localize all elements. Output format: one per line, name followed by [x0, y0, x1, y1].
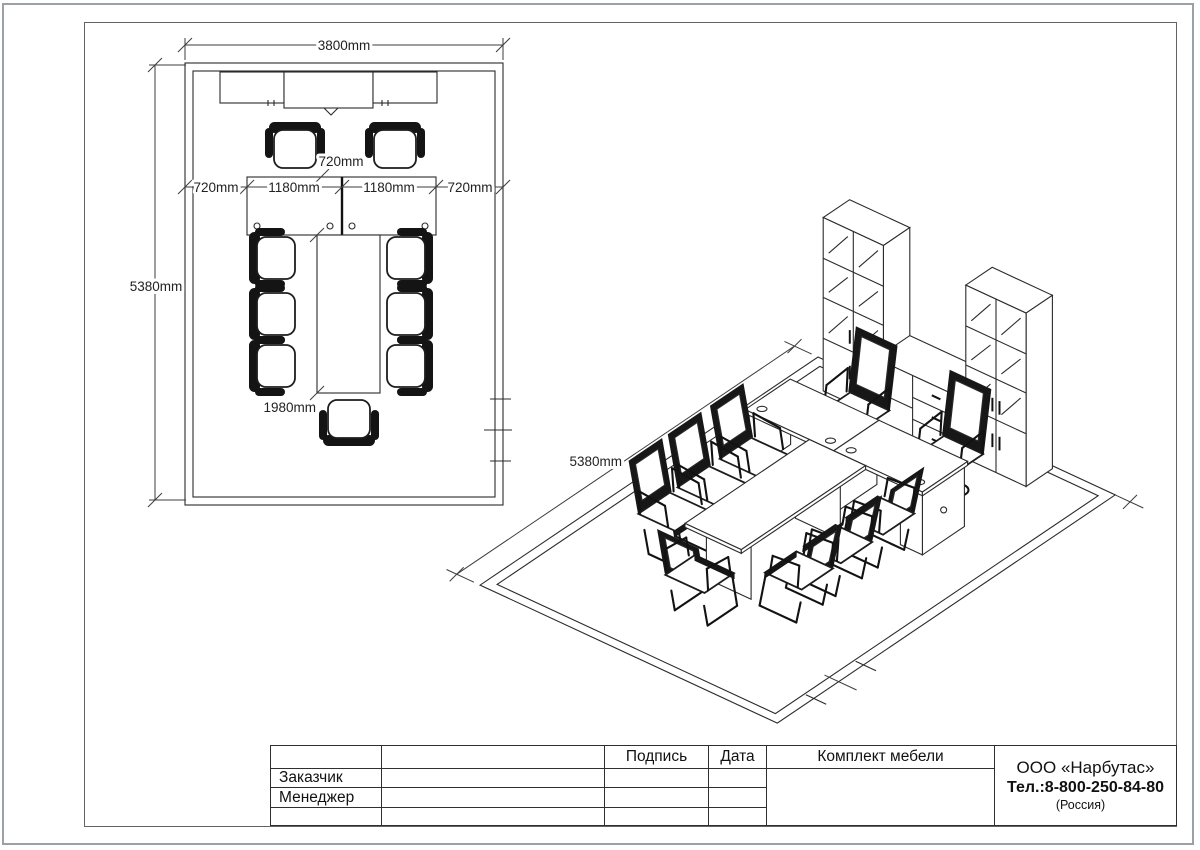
customer-value-cell — [381, 768, 604, 787]
manager-signature-cell — [604, 787, 708, 807]
technical-drawing-canvas: 3800mm 5380mm 720mm 1180mm 1180mm 720mm … — [0, 0, 1200, 850]
plan-dim-table-width-label: 720mm — [318, 154, 363, 169]
plan-task-chair — [365, 122, 425, 168]
manager-value-cell — [381, 787, 604, 807]
title-block-cell-empty — [271, 746, 381, 768]
customer-signature-cell — [604, 768, 708, 787]
customer-label: Заказчик — [271, 768, 381, 787]
customer-date-cell — [708, 768, 766, 787]
plan-task-chair — [265, 122, 325, 168]
company-name: ООО «Нарбутас» — [1017, 757, 1155, 778]
plan-dim-depth-label: 5380mm — [130, 279, 183, 294]
spare-row-cell — [604, 807, 708, 825]
drawing-sheet: 3800mm 5380mm 720mm 1180mm 1180mm 720mm … — [0, 0, 1200, 850]
signature-header: Подпись — [604, 746, 708, 768]
plan-dim-wall-left-label: 720mm — [193, 180, 238, 195]
plan-dim-desk-right-label: 1180mm — [363, 180, 415, 195]
isometric-view — [447, 200, 1144, 723]
plan-conference-table — [317, 235, 380, 393]
company-phone: Тел.:8-800-250-84-80 — [1007, 778, 1164, 798]
plan-dim-wall-right-label: 720mm — [447, 180, 492, 195]
iso-dim-depth-label: 5380mm — [569, 454, 622, 469]
manager-label: Менеджер — [271, 787, 381, 807]
plan-dim-desk-left-label: 1180mm — [268, 180, 320, 195]
spare-row-cell — [271, 807, 381, 825]
floor-plan: 3800mm 5380mm 720mm 1180mm 1180mm 720mm … — [130, 38, 512, 507]
title-block: Подпись Дата Комплект мебели ООО «Нарбут… — [270, 745, 1177, 826]
spare-row-cell — [381, 807, 604, 825]
furniture-set-header: Комплект мебели — [766, 746, 994, 768]
plan-dim-table-length-label: 1980mm — [263, 400, 316, 415]
date-header: Дата — [708, 746, 766, 768]
spare-row-cell — [708, 807, 766, 825]
title-block-cell-empty — [381, 746, 604, 768]
company-info: ООО «Нарбутас» Тел.:8-800-250-84-80 (Рос… — [994, 746, 1176, 825]
plan-dim-width-label: 3800mm — [318, 38, 371, 53]
manager-date-cell — [708, 787, 766, 807]
furniture-set-body — [766, 768, 994, 825]
company-country: (Россия) — [1056, 798, 1115, 814]
